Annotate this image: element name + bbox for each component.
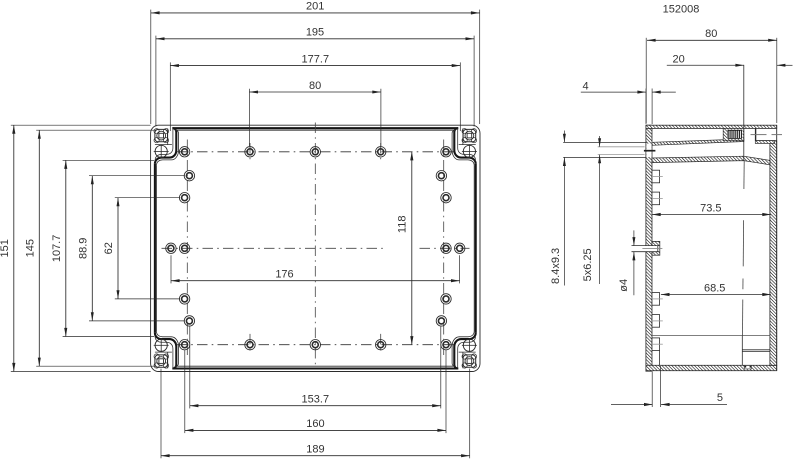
svg-text:ø4: ø4 [618,279,630,292]
svg-text:88.9: 88.9 [77,238,89,259]
svg-text:80: 80 [705,28,717,40]
svg-text:195: 195 [306,27,324,39]
svg-text:68.5: 68.5 [704,283,725,295]
svg-text:152008: 152008 [663,3,700,15]
svg-text:73.5: 73.5 [700,203,721,215]
svg-text:5x6.25: 5x6.25 [582,248,594,281]
svg-text:8.4x9.3: 8.4x9.3 [550,248,562,284]
svg-text:151: 151 [0,239,11,257]
svg-text:145: 145 [24,239,36,257]
svg-text:62: 62 [103,242,115,254]
svg-text:5: 5 [717,392,723,404]
svg-text:80: 80 [309,80,321,92]
svg-text:153.7: 153.7 [302,394,330,406]
svg-text:160: 160 [306,418,324,430]
svg-text:189: 189 [306,444,324,456]
svg-text:177.7: 177.7 [302,53,330,65]
svg-text:4: 4 [583,80,589,92]
svg-text:107.7: 107.7 [51,235,63,263]
svg-text:20: 20 [672,53,684,65]
svg-text:118: 118 [397,216,409,234]
svg-text:176: 176 [275,269,293,281]
svg-text:201: 201 [306,1,324,13]
